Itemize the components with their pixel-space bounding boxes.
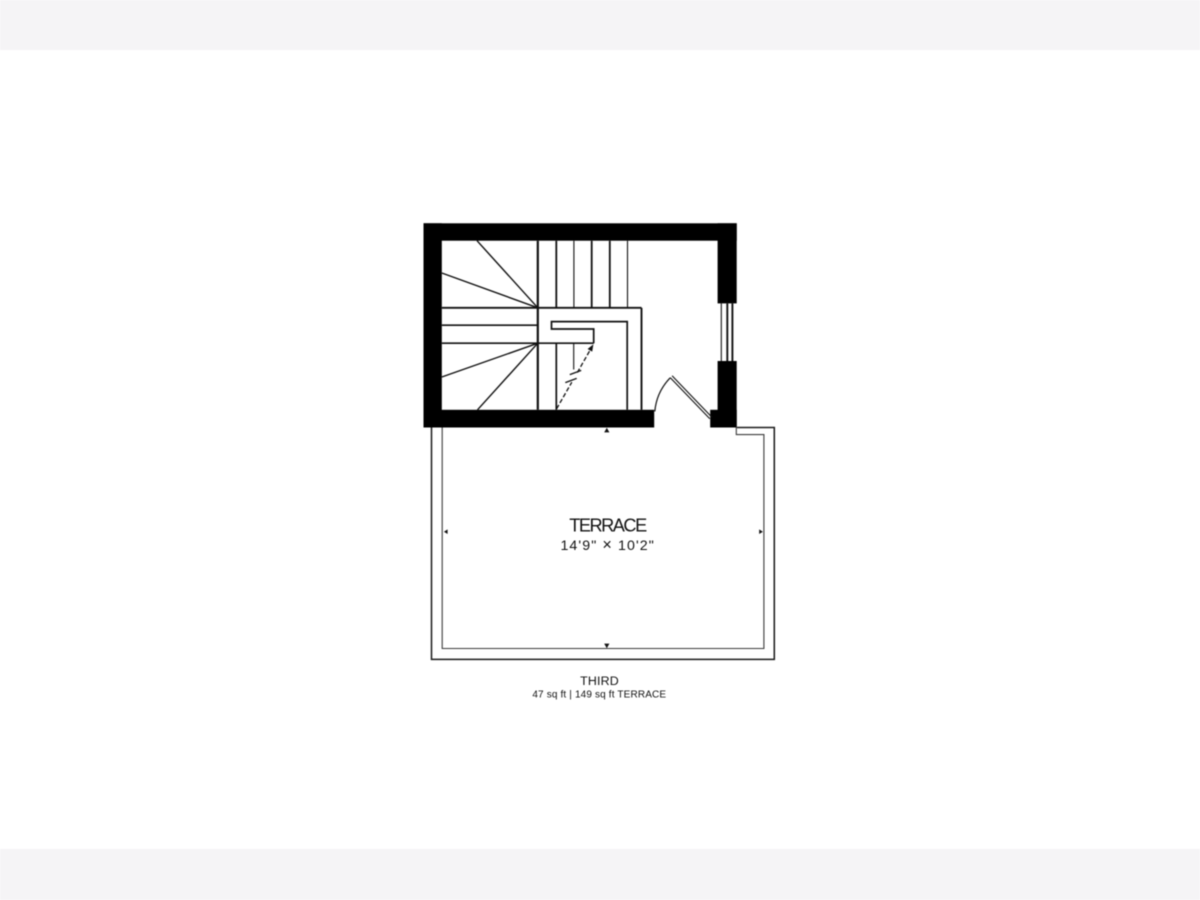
svg-text:THIRD: THIRD (580, 674, 619, 688)
svg-text:14'9" × 10'2": 14'9" × 10'2" (560, 536, 655, 554)
svg-text:47 sq ft | 149 sq ft TERRACE: 47 sq ft | 149 sq ft TERRACE (532, 689, 666, 700)
svg-text:TERRACE: TERRACE (569, 516, 647, 536)
